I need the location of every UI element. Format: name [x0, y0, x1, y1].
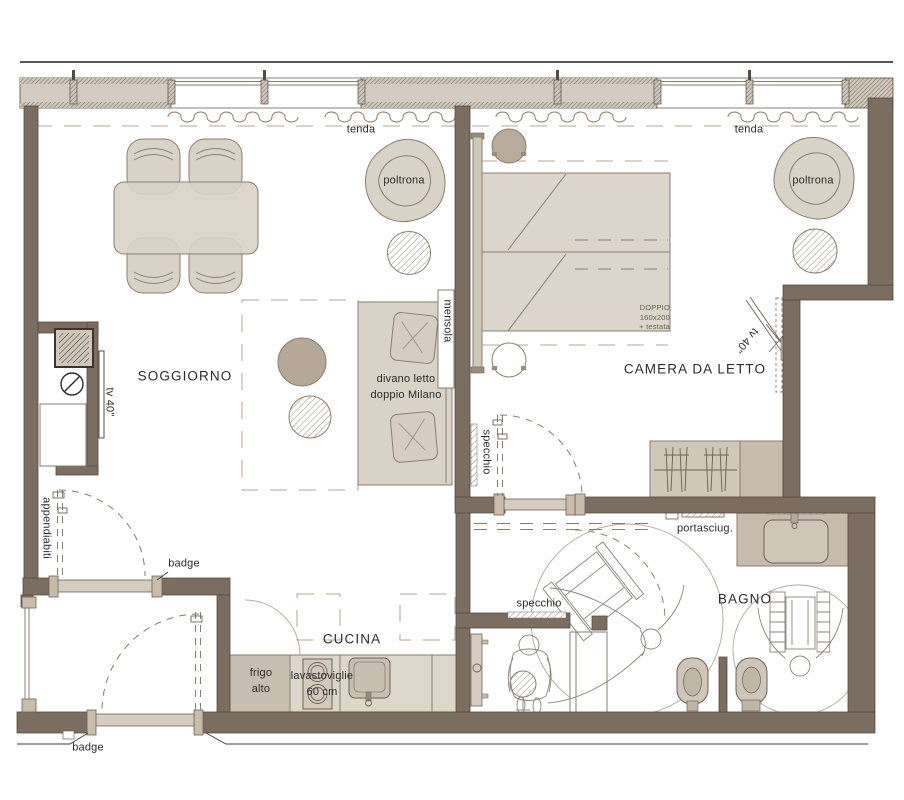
bathroom-vanity	[737, 508, 848, 566]
rug-area	[242, 300, 358, 490]
label-mensola: mensola	[440, 300, 455, 343]
label-poltrona-soggiorno: poltrona	[383, 174, 424, 189]
label-room-cucina: CUCINA	[323, 632, 381, 647]
label-room-camera: CAMERA DA LETTO	[624, 362, 766, 377]
label-tenda-camera: tenda	[735, 123, 764, 138]
label-appendiabiti: appendiabiti	[39, 497, 54, 559]
plan-drawing	[0, 0, 904, 800]
floor-plan: tenda tenda poltrona poltrona SOGGIORNO …	[0, 0, 904, 800]
dining-table	[114, 182, 258, 254]
upper-cabinet	[400, 594, 455, 640]
cabinet	[40, 404, 86, 466]
label-bed-spec: DOPPIO 160x200 + testata	[639, 303, 670, 332]
dining-set	[114, 139, 258, 293]
label-frigo: frigo alto	[250, 665, 272, 697]
label-room-bagno: BAGNO	[718, 592, 772, 607]
wardrobe	[650, 441, 783, 500]
washbasin	[764, 520, 828, 563]
label-specchio-camera: specchio	[479, 429, 494, 474]
person-standing	[508, 635, 551, 714]
label-badge-interno: badge	[168, 557, 200, 572]
label-divano-letto: divano letto doppio Milano	[370, 371, 441, 403]
label-poltrona-camera: poltrona	[792, 174, 833, 189]
stool	[510, 671, 536, 697]
label-specchio-bagno: specchio	[516, 597, 561, 612]
label-badge-esterno: badge	[72, 741, 104, 756]
door-closet	[49, 490, 162, 597]
vestibule-glazing	[22, 597, 36, 712]
bed-double	[471, 133, 670, 373]
pouf-camera	[793, 229, 837, 273]
coffee-tables	[278, 338, 331, 438]
toilet	[736, 658, 767, 711]
label-room-soggiorno: SOGGIORNO	[138, 369, 233, 384]
label-lavastoviglie: lavastoviglie 60 cm	[291, 668, 354, 700]
label-portasciugamani: portasciug.	[677, 522, 733, 537]
antibagno-washbasin	[471, 634, 488, 706]
tv-unit-soggiorno	[38, 322, 104, 475]
label-tenda-soggiorno: tenda	[347, 123, 376, 138]
bidet	[677, 658, 708, 711]
label-tv-soggiorno: tv 40"	[102, 388, 117, 417]
open-door-leaf-bagno	[570, 632, 607, 714]
pouf-soggiorno	[388, 232, 431, 275]
headboard	[473, 137, 482, 367]
